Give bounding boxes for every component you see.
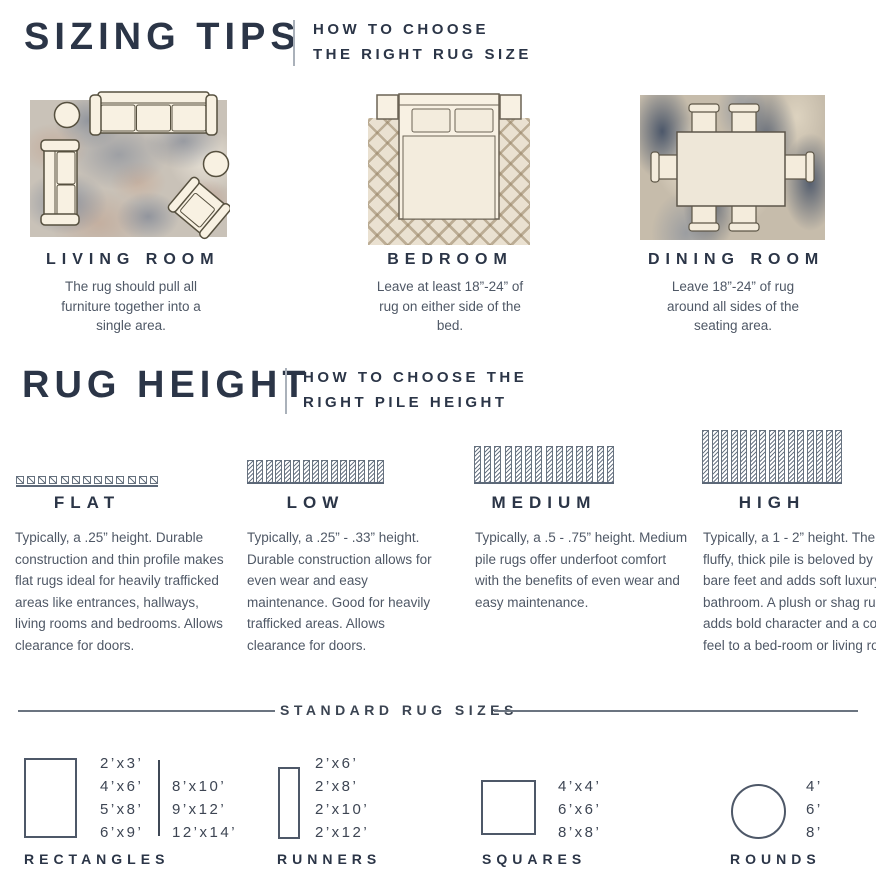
runner-shape — [278, 767, 300, 839]
side-table-round-2 — [204, 152, 229, 177]
sizing-tips-subtitle: HOW TO CHOOSE THE RIGHT RUG SIZE — [313, 17, 532, 67]
squares-label: SQUARES — [482, 851, 586, 867]
medium-pile-illustration — [474, 446, 614, 484]
size-value: 12’x14’ — [172, 821, 237, 844]
living-room-label: LIVING ROOM — [46, 251, 216, 269]
flat-desc: Typically, a .25” height. Durable constr… — [15, 527, 230, 656]
dining-table — [677, 132, 785, 206]
size-value: 2’x10’ — [315, 798, 369, 821]
size-value: 4’x4’ — [558, 775, 601, 798]
low-label: LOW — [247, 493, 384, 513]
living-room-furniture-illustration — [28, 90, 230, 240]
size-value: 2’x12’ — [315, 821, 369, 844]
runner-sizes: 2’x6’ 2’x8’ 2’x10’ 2’x12’ — [315, 752, 369, 844]
subtitle-line-1: HOW TO CHOOSE — [313, 17, 532, 42]
high-label: HIGH — [702, 493, 842, 513]
flat-label: FLAT — [16, 493, 158, 513]
rectangle-sizes-divider — [158, 760, 160, 836]
rounds-label: ROUNDS — [730, 851, 821, 867]
header-divider — [293, 20, 295, 66]
dining-room-furniture-illustration — [640, 95, 825, 240]
chair-top-1 — [689, 104, 719, 135]
dining-room-desc: Leave 18”-24” of rug around all sides of… — [650, 277, 816, 336]
rectangles-label: RECTANGLES — [24, 851, 169, 867]
chair-top-2 — [729, 104, 759, 135]
divider-line-right — [494, 710, 858, 712]
divider-line-left — [18, 710, 275, 712]
size-value: 6’x6’ — [558, 798, 601, 821]
living-room-desc: The rug should pull all furniture togeth… — [46, 277, 216, 336]
bedroom-furniture-illustration — [368, 90, 530, 230]
subtitle-line-2: THE RIGHT RUG SIZE — [313, 42, 532, 67]
low-desc: Typically, a .25” - .33” height. Durable… — [247, 527, 447, 656]
size-value: 9’x12’ — [172, 798, 237, 821]
size-value: 2’x6’ — [315, 752, 369, 775]
nightstand-left — [377, 95, 398, 119]
low-pile-illustration — [247, 460, 384, 484]
medium-label: MEDIUM — [474, 493, 614, 513]
bedroom-label: BEDROOM — [365, 251, 535, 269]
high-pile-illustration — [702, 430, 842, 484]
size-value: 6’x9’ — [100, 821, 143, 844]
round-shape — [731, 784, 786, 839]
high-desc: Typically, a 1 - 2” height. The fluffy, … — [703, 527, 876, 656]
size-value: 5’x8’ — [100, 798, 143, 821]
size-value: 8’x10’ — [172, 775, 237, 798]
round-sizes: 4’ 6’ 8’ — [806, 775, 823, 844]
square-sizes: 4’x4’ 6’x6’ 8’x8’ — [558, 775, 601, 844]
rectangle-sizes-col1: 2’x3’ 4’x6’ 5’x8’ 6’x9’ — [100, 752, 143, 844]
header-divider-2 — [285, 368, 287, 414]
standard-rug-sizes-title: STANDARD RUG SIZES — [280, 702, 490, 718]
bedroom-desc: Leave at least 18”-24” of rug on either … — [368, 277, 532, 336]
size-value: 2’x3’ — [100, 752, 143, 775]
size-value: 8’x8’ — [558, 821, 601, 844]
flat-pile-illustration — [16, 476, 158, 487]
pillow-right — [455, 109, 493, 132]
rug-height-title: RUG HEIGHT — [22, 364, 311, 407]
subtitle2-line-2: RIGHT PILE HEIGHT — [303, 390, 527, 415]
side-table-round — [55, 103, 80, 128]
size-value: 4’ — [806, 775, 823, 798]
sizing-tips-title: SIZING TIPS — [24, 16, 301, 59]
rug-height-subtitle: HOW TO CHOOSE THE RIGHT PILE HEIGHT — [303, 365, 527, 415]
size-value: 2’x8’ — [315, 775, 369, 798]
size-value: 4’x6’ — [100, 775, 143, 798]
medium-desc: Typically, a .5 - .75” height. Medium pi… — [475, 527, 690, 613]
bed-blanket — [403, 136, 495, 219]
dining-room-label: DINING ROOM — [648, 251, 818, 269]
square-shape — [481, 780, 536, 835]
rectangle-shape — [24, 758, 77, 838]
size-value: 8’ — [806, 821, 823, 844]
subtitle2-line-1: HOW TO CHOOSE THE — [303, 365, 527, 390]
runners-label: RUNNERS — [277, 851, 381, 867]
nightstand-right — [500, 95, 521, 119]
size-value: 6’ — [806, 798, 823, 821]
armchair — [167, 176, 230, 240]
rectangle-sizes-col2: 8’x10’ 9’x12’ 12’x14’ — [172, 775, 237, 844]
chair-right — [783, 152, 814, 182]
pillow-left — [412, 109, 450, 132]
rug-sizing-infographic: SIZING TIPS HOW TO CHOOSE THE RIGHT RUG … — [0, 0, 876, 889]
